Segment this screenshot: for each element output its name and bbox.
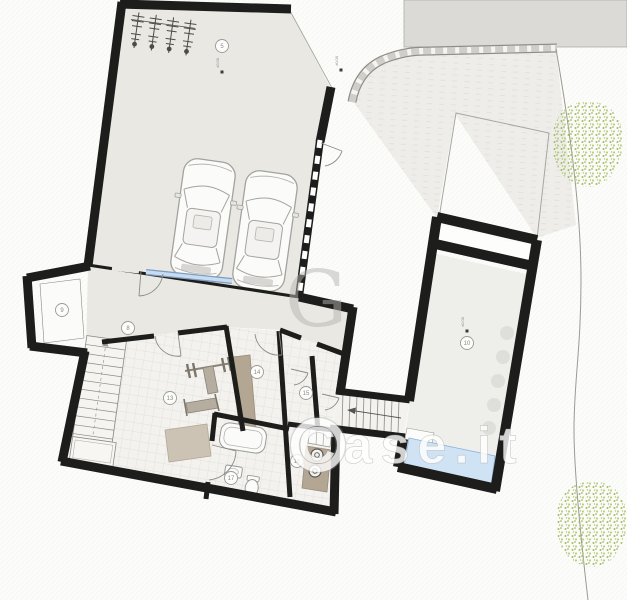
svg-text:14: 14 — [254, 370, 261, 376]
room-tag-bathroom: 17 — [225, 472, 238, 485]
svg-text:±0.00: ±0.00 — [460, 316, 465, 327]
hedge-bush-bottom — [556, 482, 626, 567]
floor-plan-drawing: 5 9 8 13 14 15 16 17 — [0, 0, 627, 600]
svg-text:13: 13 — [167, 396, 174, 402]
svg-text:±0.00: ±0.00 — [215, 57, 220, 68]
svg-text:10: 10 — [464, 341, 471, 347]
room-tag-annex: 9 — [56, 304, 69, 317]
room-tag-gym: 13 — [164, 392, 177, 405]
svg-text:15: 15 — [303, 391, 310, 397]
watermark-site-text: Case.it — [298, 417, 525, 475]
room-tag-middle-room: 14 — [251, 366, 264, 379]
gym-mat — [165, 424, 211, 462]
room-tag-hallway: 8 — [122, 322, 135, 335]
floor-plan-page: 5 9 8 13 14 15 16 17 — [0, 0, 627, 600]
svg-text:±0.00: ±0.00 — [334, 55, 339, 66]
watermark-letter: G — [285, 255, 347, 345]
room-tag-garage: 5 — [216, 40, 229, 53]
room-tag-right-room: 15 — [300, 387, 313, 400]
hedge-bush-top — [552, 102, 622, 187]
svg-text:17: 17 — [228, 476, 235, 482]
room-tag-pool-room: 10 — [461, 337, 474, 350]
neighbor-building — [404, 0, 627, 47]
